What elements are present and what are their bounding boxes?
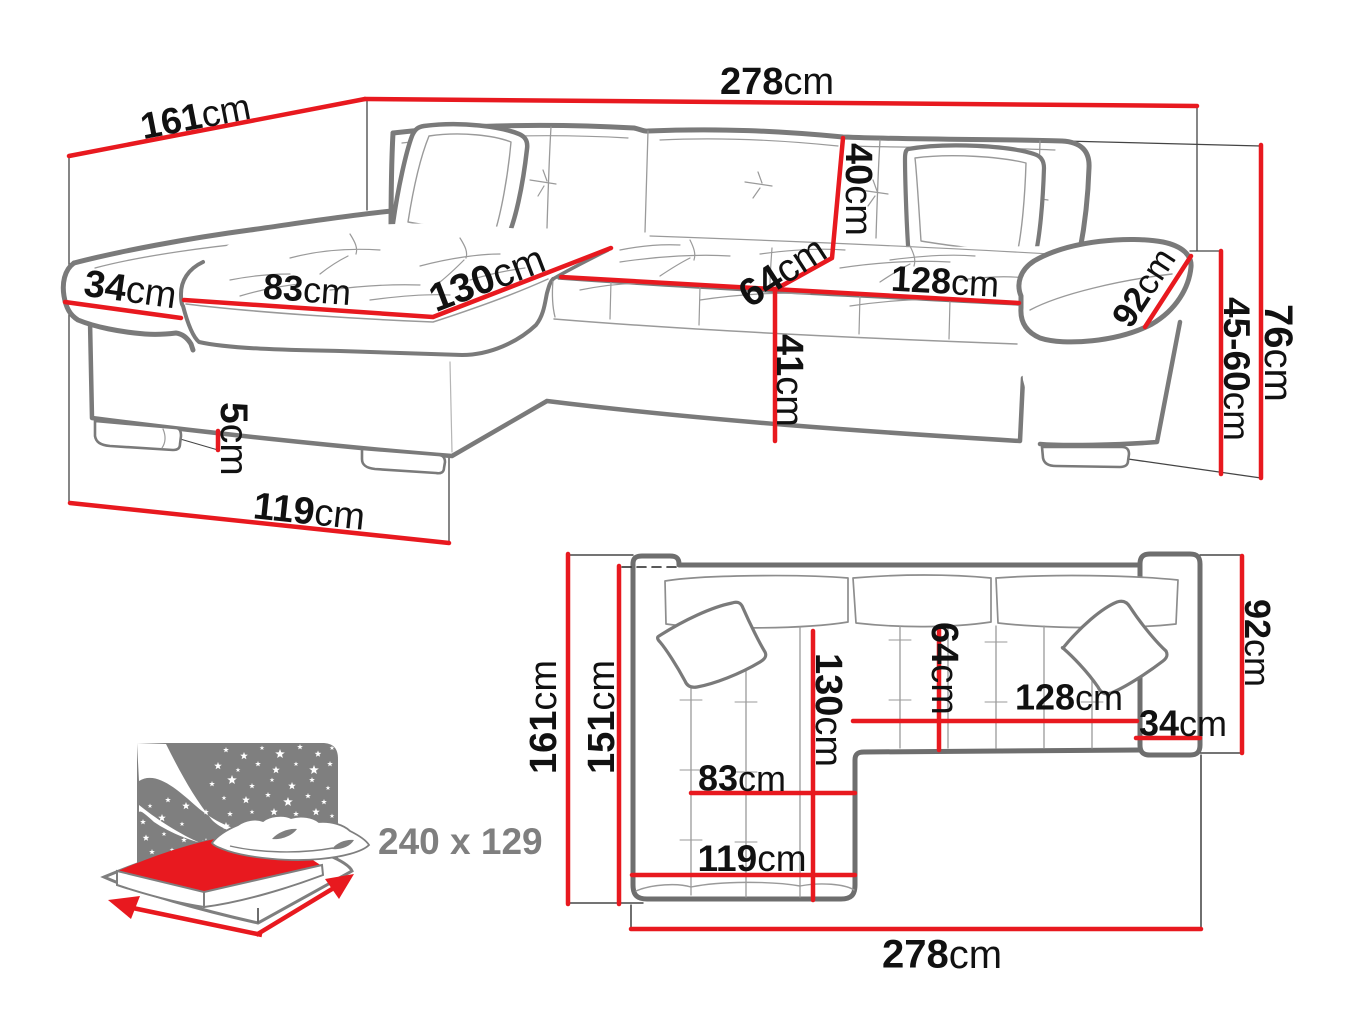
- svg-text:128cm: 128cm: [1015, 677, 1123, 718]
- svg-text:278cm: 278cm: [720, 61, 834, 103]
- svg-text:119cm: 119cm: [697, 838, 806, 879]
- svg-text:76cm: 76cm: [1256, 304, 1300, 402]
- svg-text:5cm: 5cm: [212, 402, 255, 476]
- svg-text:278cm: 278cm: [882, 933, 1002, 977]
- svg-text:40cm: 40cm: [837, 143, 879, 236]
- svg-text:161cm: 161cm: [137, 86, 254, 147]
- svg-text:119cm: 119cm: [251, 485, 367, 538]
- svg-text:64cm: 64cm: [923, 622, 965, 715]
- svg-text:41cm: 41cm: [768, 334, 810, 427]
- svg-text:128cm: 128cm: [890, 258, 1000, 305]
- svg-text:83cm: 83cm: [698, 758, 786, 799]
- svg-text:240 x 129: 240 x 129: [378, 821, 543, 862]
- svg-text:130cm: 130cm: [807, 653, 849, 767]
- svg-text:45-60cm: 45-60cm: [1216, 297, 1257, 441]
- svg-text:34cm: 34cm: [1139, 703, 1227, 744]
- svg-text:151cm: 151cm: [581, 660, 623, 774]
- svg-text:161cm: 161cm: [523, 660, 565, 774]
- svg-text:83cm: 83cm: [262, 266, 353, 313]
- svg-text:92cm: 92cm: [1237, 599, 1278, 687]
